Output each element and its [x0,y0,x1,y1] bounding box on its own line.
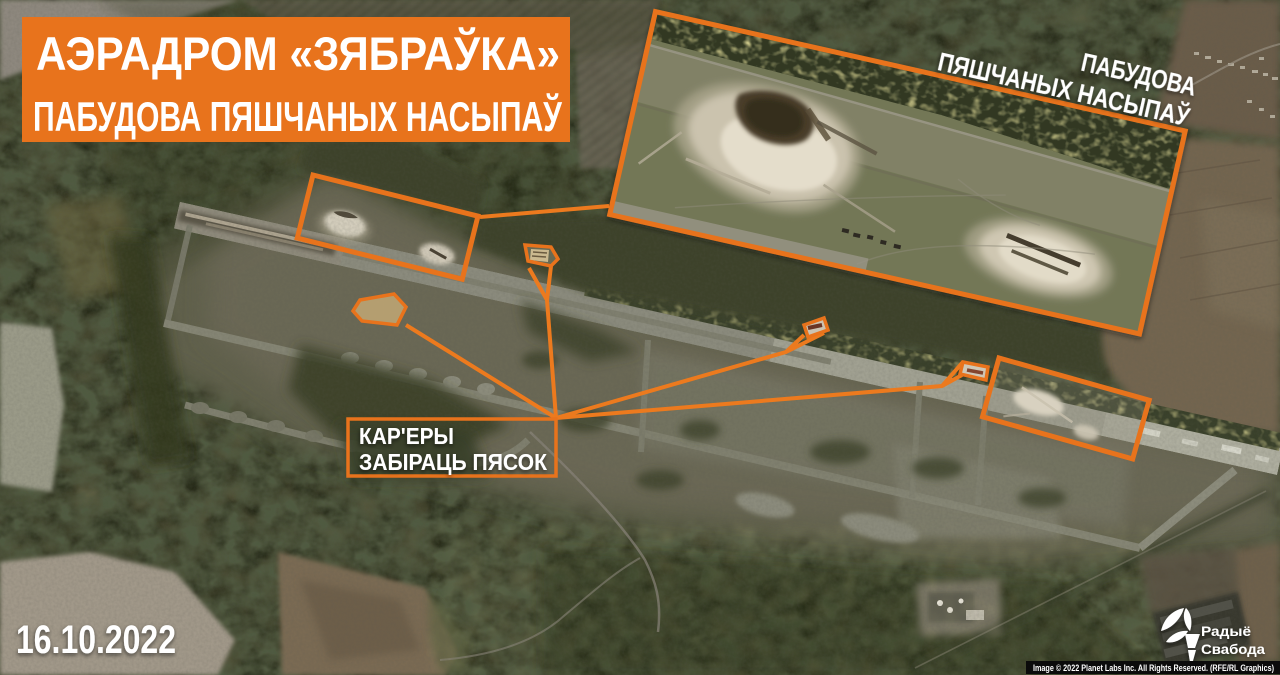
svg-text:АЭРАДРОМ «ЗЯБРАЎКА»: АЭРАДРОМ «ЗЯБРАЎКА» [36,27,560,80]
svg-text:Радыё: Радыё [1201,623,1251,639]
svg-text:ПАБУДОВА ПЯШЧАНЫХ НАСЫПАЎ: ПАБУДОВА ПЯШЧАНЫХ НАСЫПАЎ [33,92,563,140]
svg-text:16.10.2022: 16.10.2022 [16,618,176,662]
svg-text:КАР'ЕРЫ: КАР'ЕРЫ [359,423,454,449]
svg-text:Свабода: Свабода [1201,641,1265,657]
svg-text:ЗАБІРАЦЬ ПЯСОК: ЗАБІРАЦЬ ПЯСОК [359,449,548,475]
svg-text:Image © 2022 Planet Labs Inc.: Image © 2022 Planet Labs Inc. All Rights… [1033,663,1274,673]
